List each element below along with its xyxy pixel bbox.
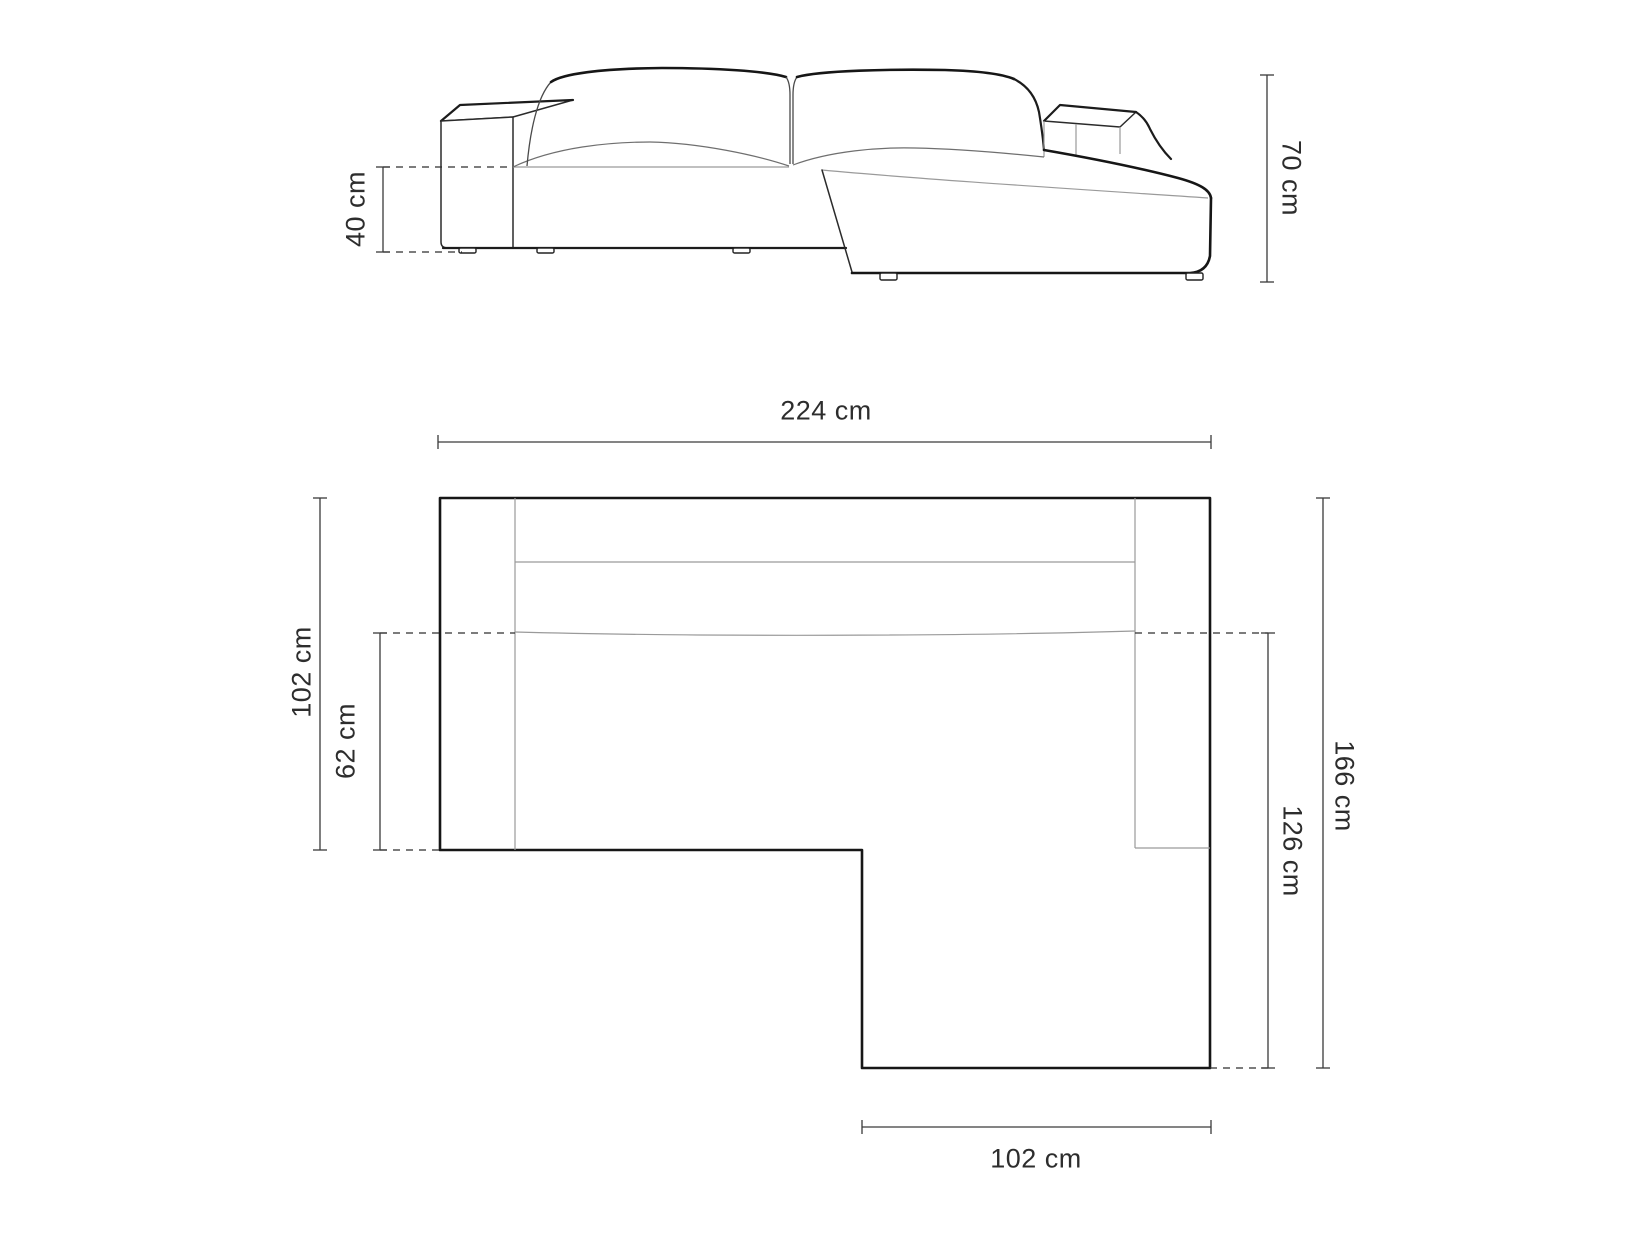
- technical-drawing-page: 40 cm 70 cm 224 cm 102 cm 62 cm 166 cm 1…: [0, 0, 1648, 1236]
- dim-label-seat-depth: 62 cm: [333, 703, 360, 779]
- dim-label-chaise-width: 102 cm: [990, 1146, 1082, 1173]
- plan-view-drawing: [440, 498, 1210, 1068]
- sofa-dimension-drawing: [0, 0, 1648, 1236]
- dim-label-total-width: 224 cm: [780, 398, 872, 425]
- dim-label-chaise-length: 126 cm: [1279, 805, 1306, 897]
- plan-view-dimension-lines: [313, 435, 1330, 1134]
- dim-label-total-height: 70 cm: [1278, 140, 1305, 216]
- front-view-drawing: [441, 68, 1211, 280]
- dim-label-seat-height: 40 cm: [343, 171, 370, 247]
- dim-label-body-depth: 102 cm: [289, 626, 316, 718]
- dim-label-total-depth: 166 cm: [1331, 740, 1358, 832]
